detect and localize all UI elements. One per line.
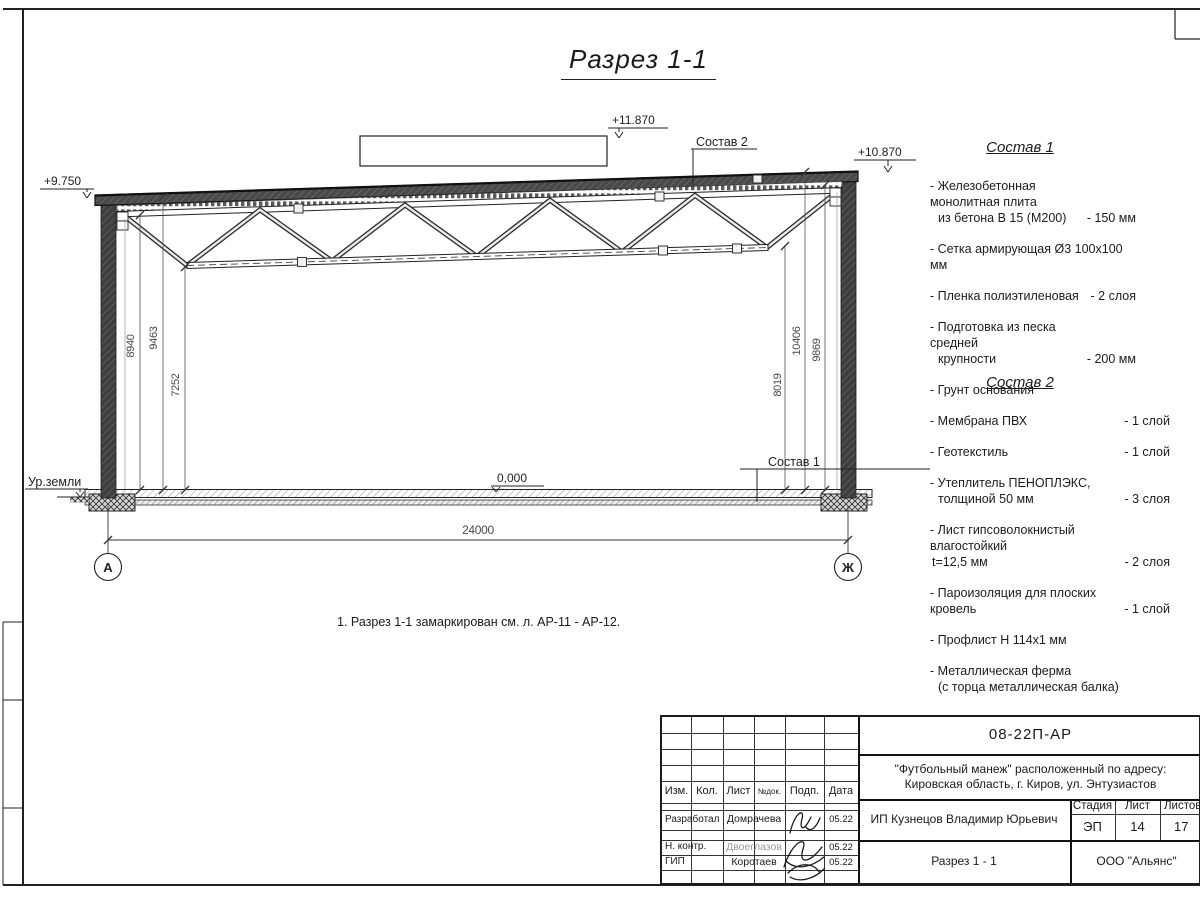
spec2-item: - Лист гипсоволокнистый влагостойкийt=12… xyxy=(930,522,1170,570)
tb-date-gip: 05.22 xyxy=(824,855,858,870)
spec2-item: - Металлическая ферма(с торца металличес… xyxy=(930,663,1170,695)
elev-parapet-label: +11.870 xyxy=(612,113,655,127)
dim-left-8940: 8940 xyxy=(125,334,137,357)
spec2-item: - Мембрана ПВХ - 1 слой xyxy=(930,413,1170,429)
axis-left-label: А xyxy=(103,560,113,575)
tb-col-list: Лист xyxy=(723,781,754,803)
spec1-item: - Пленка полиэтиленовая - 2 слоя xyxy=(930,288,1136,304)
elev-roof-right-label: +10.870 xyxy=(858,145,902,159)
spec1-item: - Железобетонная монолитная плитаиз бето… xyxy=(930,178,1136,226)
tb-stage-label: Стадия xyxy=(1070,799,1115,814)
dim-left-9463: 9463 xyxy=(148,326,160,349)
tb-doc-number: 08-22П-АР xyxy=(858,717,1200,754)
tb-col-ndok: №док. xyxy=(754,781,785,803)
dim-right-10406: 10406 xyxy=(791,326,803,355)
ground-level xyxy=(57,497,89,503)
tb-date-developer: 05.22 xyxy=(824,810,858,830)
tb-project: "Футбольный манеж" расположенный по адре… xyxy=(858,754,1200,799)
spec2-item: - Утеплитель ПЕНОПЛЭКС,толщиной 50 мм - … xyxy=(930,475,1170,507)
tb-role-gip: ГИП xyxy=(662,855,723,870)
span-dim-label: 24000 xyxy=(462,523,494,537)
spec-list-1: Состав 1 - Железобетонная монолитная пли… xyxy=(930,140,1136,413)
dim-left-7252: 7252 xyxy=(170,373,182,396)
tb-sheet-title: Разрез 1 - 1 xyxy=(858,840,1070,883)
tb-col-kol: Кол. xyxy=(691,781,723,803)
elev-roof-left-label: +9.750 xyxy=(44,174,81,188)
frame-left-boxes xyxy=(3,622,23,885)
tb-stage-value: ЭП xyxy=(1070,814,1115,840)
dim-right-9869: 9869 xyxy=(811,338,823,361)
tb-name-ncontrol: Двоеглазов xyxy=(723,840,785,855)
spec2-item: - Профлист Н 114х1 мм xyxy=(930,632,1170,648)
leader-sostav1-label: Состав 1 xyxy=(768,455,820,469)
ground-leader xyxy=(25,489,88,497)
drawing-title: Разрез 1-1 xyxy=(561,44,716,80)
tb-name-gip: Коротаев xyxy=(723,855,785,870)
tb-col-data: Дата xyxy=(824,781,858,803)
ground-label: Ур.земли xyxy=(28,475,81,489)
axis-markers xyxy=(95,554,862,581)
tb-role-ncontrol: Н. контр. xyxy=(662,840,723,855)
signature-gip xyxy=(780,833,828,885)
spec-list-2: Состав 2 - Мембрана ПВХ - 1 слой - Геоте… xyxy=(930,375,1170,710)
elev-roof-right xyxy=(854,160,916,172)
frame-corner-box xyxy=(1175,10,1200,39)
tb-sheet-label: Лист xyxy=(1115,799,1160,814)
drawing-note: 1. Разрез 1-1 замаркирован см. л. АР-11 … xyxy=(337,615,620,629)
wall-left xyxy=(101,205,116,498)
tb-role-developer: Разработал xyxy=(662,810,723,830)
tb-client: ИП Кузнецов Владимир Юрьевич xyxy=(858,799,1070,840)
floor-slab xyxy=(85,490,872,506)
tb-col-izm: Изм. xyxy=(662,781,691,803)
wall-right xyxy=(841,180,856,498)
tb-sheet-value: 14 xyxy=(1115,814,1160,840)
tb-name-developer: Домрачева xyxy=(723,810,785,830)
axis-right-label: Ж xyxy=(841,560,854,575)
tb-col-podp: Подп. xyxy=(785,781,824,803)
tb-sheets-label: Листов xyxy=(1160,799,1200,814)
title-block: Изм. Кол. Лист №док. Подп. Дата Разработ… xyxy=(660,715,1200,885)
tb-sheets-value: 17 xyxy=(1160,814,1200,840)
spec2-item: - Пароизоляция для плоских кровель - 1 с… xyxy=(930,585,1170,617)
spec1-heading: Состав 1 xyxy=(930,140,1110,156)
vertical-dimensions xyxy=(125,168,837,494)
dim-right-8019: 8019 xyxy=(772,373,784,396)
tb-date-ncontrol: 05.22 xyxy=(824,840,858,855)
roof-box xyxy=(360,136,607,166)
spec2-heading: Состав 2 xyxy=(930,375,1110,391)
spec2-item: - Геотекстиль - 1 слой xyxy=(930,444,1170,460)
elev-roof-left xyxy=(40,189,94,198)
elev-floor-label: 0,000 xyxy=(497,471,527,485)
spec1-item: - Сетка армирующая Ø3 100х100 мм xyxy=(930,241,1136,273)
spec1-item: - Подготовка из песка среднейкрупности -… xyxy=(930,319,1136,367)
elev-parapet xyxy=(608,128,668,138)
leader-sostav2-label: Состав 2 xyxy=(696,135,748,149)
tb-company: ООО "Альянс" xyxy=(1070,840,1200,883)
